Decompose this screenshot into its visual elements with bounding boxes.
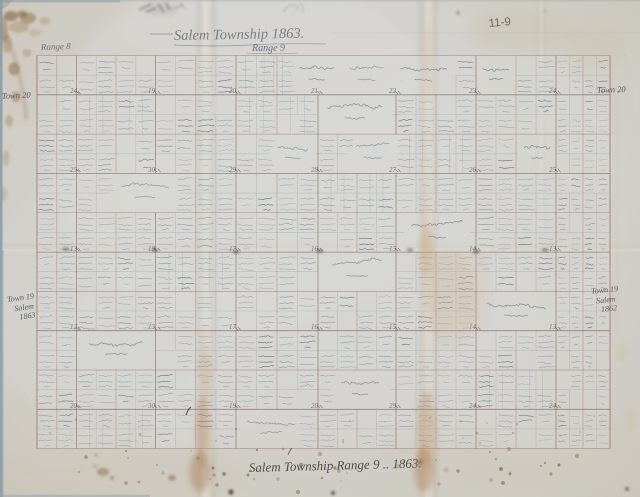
svg-text:25: 25	[549, 166, 557, 174]
svg-text:30: 30	[147, 402, 156, 410]
svg-text:21: 21	[311, 87, 318, 95]
svg-text:20: 20	[70, 402, 78, 410]
svg-text:13: 13	[549, 245, 557, 253]
svg-text:20: 20	[311, 402, 319, 410]
svg-text:Salem Township 1863.: Salem Township 1863.	[174, 26, 305, 44]
svg-text:25: 25	[70, 166, 78, 174]
svg-text:19: 19	[229, 402, 237, 410]
svg-text:Town 20: Town 20	[597, 84, 627, 95]
svg-text:30: 30	[147, 166, 156, 174]
svg-text:26: 26	[469, 166, 477, 174]
svg-text:Range 8: Range 8	[40, 41, 72, 52]
svg-text:27: 27	[389, 166, 397, 174]
svg-text:29: 29	[389, 402, 397, 410]
svg-text:29: 29	[229, 166, 237, 174]
svg-text:28: 28	[311, 166, 319, 174]
svg-text:13: 13	[70, 245, 78, 253]
svg-text:24: 24	[549, 402, 557, 410]
svg-text:15: 15	[389, 245, 397, 253]
svg-text:Range 9: Range 9	[251, 43, 285, 54]
svg-text:24: 24	[469, 402, 477, 410]
